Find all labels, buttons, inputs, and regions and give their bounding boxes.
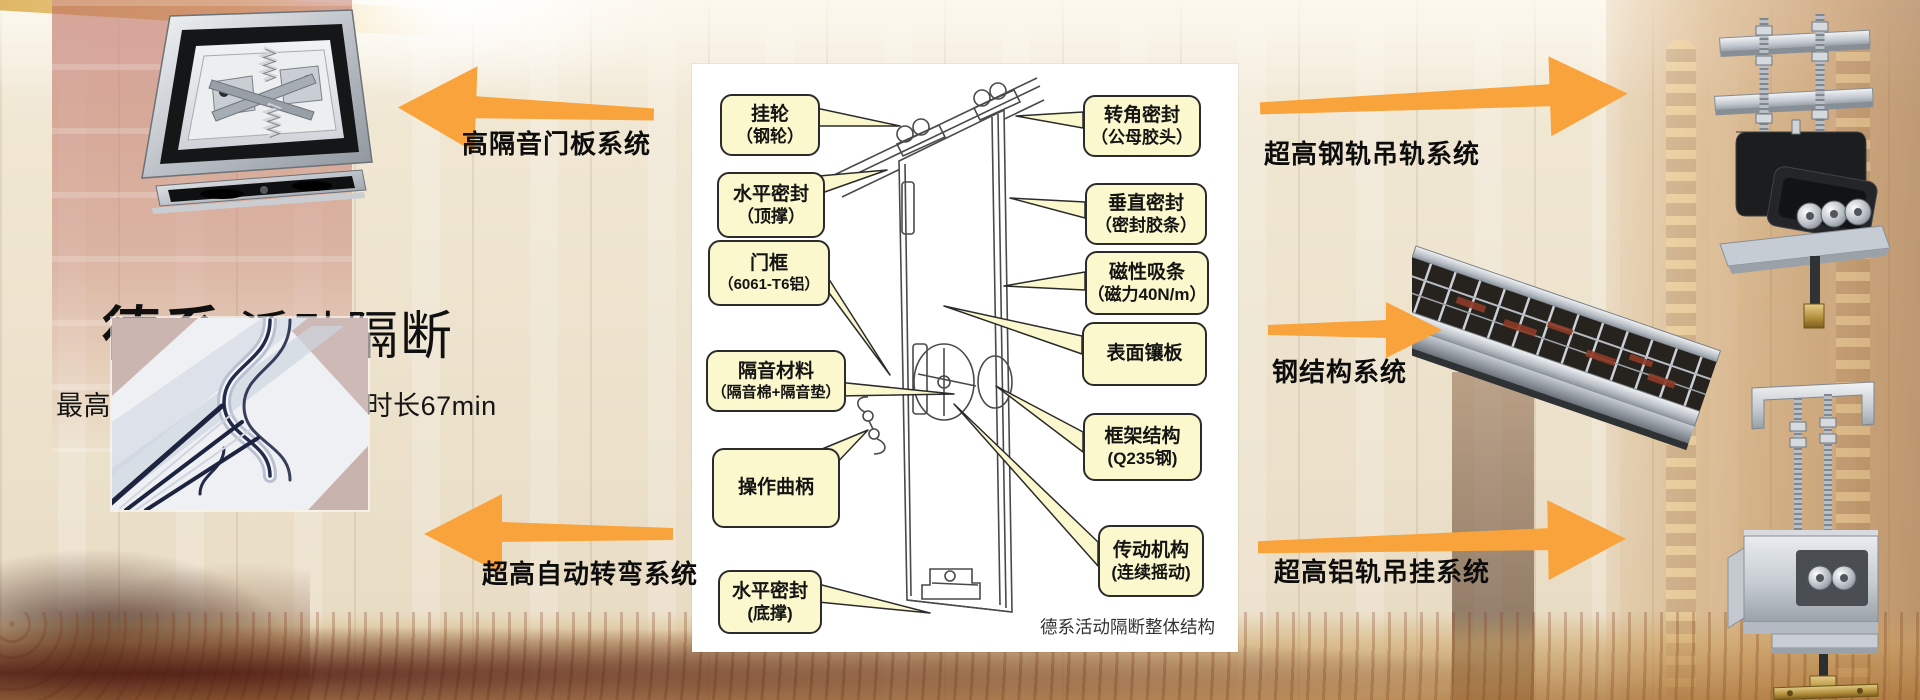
callout-text: （6061-T6铝） xyxy=(719,276,820,295)
callout-vertical-seal: 垂直密封 （密封胶条） xyxy=(1085,183,1207,245)
callout-operating-crank: 操作曲柄 xyxy=(712,448,840,528)
label-alu-rail-system: 超高铝轨吊挂系统 xyxy=(1274,552,1490,589)
callout-text: 框架结构 xyxy=(1104,425,1180,449)
callout-magnetic-strip: 磁性吸条 （磁力40N/m） xyxy=(1085,251,1209,315)
door-panel-mechanism-photo xyxy=(112,4,384,226)
partition-system-banner: 德系活动隔断 最高隔音系数56db，防火时长67min xyxy=(0,0,1920,700)
callout-text: (连续摇动) xyxy=(1111,562,1190,583)
callout-text: 隔音材料 xyxy=(738,360,814,384)
callout-text: (底撑) xyxy=(747,603,792,624)
callout-text: （磁力40N/m） xyxy=(1087,284,1206,305)
callout-text: 操作曲柄 xyxy=(738,476,814,500)
alu-rail-hanger-photo xyxy=(1716,378,1911,700)
callout-horizontal-seal-top: 水平密封 （顶撑） xyxy=(717,172,825,238)
curved-track-photo xyxy=(112,318,368,510)
diagram-caption: 德系活动隔断整体结构 xyxy=(1040,614,1240,639)
callout-text: （隔音棉+隔音垫） xyxy=(712,384,841,403)
callout-text: 磁性吸条 xyxy=(1109,261,1185,285)
callout-text: 转角密封 xyxy=(1104,104,1180,128)
callout-frame-structure: 框架结构 (Q235钢) xyxy=(1083,413,1202,481)
callout-text: 表面镶板 xyxy=(1106,342,1182,366)
callout-text: 挂轮 xyxy=(751,103,789,127)
callout-text: (Q235钢) xyxy=(1108,448,1178,469)
callout-text: 垂直密封 xyxy=(1108,192,1184,216)
callout-surface-panel: 表面镶板 xyxy=(1082,322,1207,386)
callout-text: 水平密封 xyxy=(732,580,808,604)
callout-sound-insulation: 隔音材料 （隔音棉+隔音垫） xyxy=(706,350,846,412)
callout-text: （顶撑） xyxy=(737,206,805,227)
callout-text: （公母胶头） xyxy=(1091,127,1193,148)
label-auto-turn-system: 超高自动转弯系统 xyxy=(482,554,698,591)
label-steel-structure-system: 钢结构系统 xyxy=(1272,352,1407,389)
steel-rail-hanger-photo xyxy=(1692,4,1902,334)
structure-diagram: 挂轮 （钢轮） 水平密封 （顶撑） 门框 （6061-T6铝） 隔音材料 （隔音… xyxy=(692,64,1238,652)
callout-transmission: 传动机构 (连续摇动) xyxy=(1098,525,1204,597)
callout-text: 门框 xyxy=(750,252,788,276)
callout-hanging-wheel: 挂轮 （钢轮） xyxy=(720,94,820,156)
callout-text: （钢轮） xyxy=(736,126,804,147)
callout-text: 水平密封 xyxy=(733,183,809,207)
callout-corner-seal: 转角密封 （公母胶头） xyxy=(1083,95,1201,157)
callout-horizontal-seal-bottom: 水平密封 (底撑) xyxy=(718,570,822,634)
callout-door-frame: 门框 （6061-T6铝） xyxy=(708,240,830,306)
callout-text: 传动机构 xyxy=(1113,539,1189,563)
callout-text: （密封胶条） xyxy=(1095,215,1197,236)
label-steel-rail-system: 超高钢轨吊轨系统 xyxy=(1264,134,1480,171)
label-door-panel-system: 高隔音门板系统 xyxy=(462,124,651,161)
